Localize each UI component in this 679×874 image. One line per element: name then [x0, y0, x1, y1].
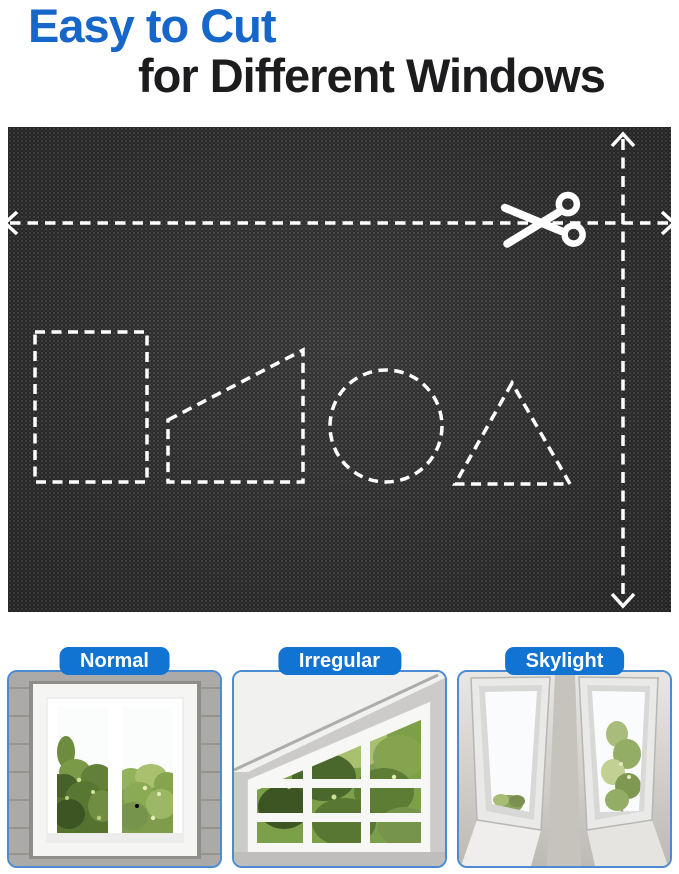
cut-guide-trapezoid — [168, 350, 303, 482]
height-arrow — [612, 134, 634, 606]
cut-guide-triangle — [455, 383, 570, 484]
window-type-card-skylight: Skylight — [457, 646, 672, 868]
window-type-label: Skylight — [505, 647, 625, 675]
foliage-right-pane — [117, 764, 180, 837]
product-infographic: Easy to Cut for Different Windows — [0, 0, 679, 874]
window-photo-normal — [7, 670, 222, 868]
window-type-label: Normal — [59, 647, 170, 675]
window-type-cards: Normal — [0, 646, 679, 870]
window-type-label: Irregular — [278, 647, 401, 675]
page-title-rest: for Different Windows — [138, 50, 605, 102]
window-photo-irregular — [232, 670, 447, 868]
skylight-left — [471, 677, 550, 830]
cut-guide-circle — [330, 370, 442, 482]
window-type-card-irregular: Irregular — [232, 646, 447, 868]
cut-guide-rectangle — [35, 332, 147, 482]
cutting-guides — [0, 127, 679, 612]
scissors-icon — [502, 194, 583, 252]
page-title-accent: Easy to Cut — [28, 0, 276, 52]
skylight-right — [579, 677, 658, 830]
window-photo-skylight — [457, 670, 672, 868]
fabric-swatch-panel — [0, 127, 679, 612]
window-type-card-normal: Normal — [7, 646, 222, 868]
